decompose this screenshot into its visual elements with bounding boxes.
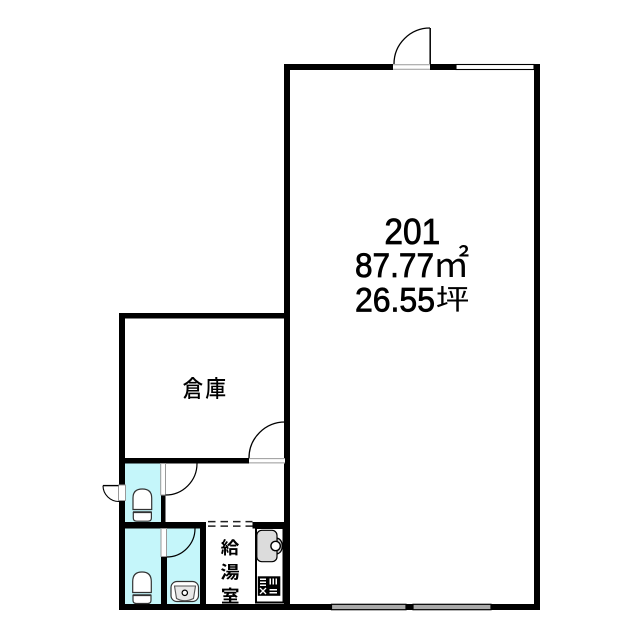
svg-text:26.55: 26.55 (355, 282, 435, 320)
svg-text:201: 201 (384, 211, 440, 252)
svg-text:87.77: 87.77 (355, 247, 434, 285)
